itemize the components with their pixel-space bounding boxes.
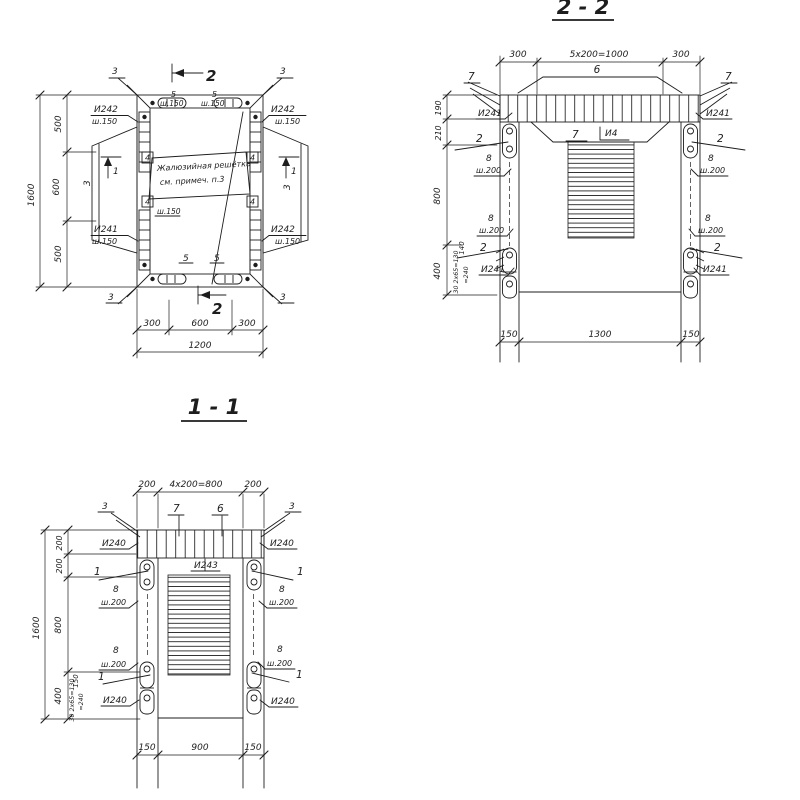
wall-detail bbox=[684, 124, 705, 298]
dim-label: 400 bbox=[433, 262, 443, 279]
item-callout: 4 bbox=[145, 154, 150, 163]
spacing-label: ш.150 bbox=[157, 207, 181, 216]
item-callout: 2 bbox=[476, 133, 483, 145]
item-callout: 7 bbox=[173, 503, 180, 515]
mark-label: И240 bbox=[103, 696, 127, 706]
spacing-label: ш.200 bbox=[269, 598, 294, 607]
item-callout: 3 bbox=[112, 67, 118, 77]
mark-label: И242 bbox=[271, 225, 295, 235]
item-callout: 5 bbox=[212, 90, 217, 99]
dim-label: 200 bbox=[55, 535, 64, 550]
note-text: см. примеч. п.3 bbox=[160, 175, 225, 187]
dim-label: =240 bbox=[78, 693, 85, 710]
dim-label: 30 2x65=130 bbox=[69, 678, 76, 721]
dim-label: 300 bbox=[509, 50, 526, 60]
item-callout: 5 bbox=[183, 254, 189, 264]
section-arrow-icon bbox=[282, 157, 290, 166]
dim-label: 500 bbox=[54, 245, 64, 262]
mark-label: И4 bbox=[605, 129, 618, 139]
item-callout: 7 bbox=[468, 71, 475, 83]
item-callout: 3 bbox=[280, 67, 286, 77]
item-callout: 1 bbox=[297, 566, 304, 578]
item-callout: 4 bbox=[250, 154, 255, 163]
cut-arrow-icon bbox=[200, 291, 210, 299]
corner-detail bbox=[118, 210, 186, 304]
item-callout: 8 bbox=[705, 214, 711, 224]
mark-label: И241 bbox=[703, 265, 727, 275]
mark-label: И242 bbox=[271, 105, 295, 115]
mark-label: И241 bbox=[94, 225, 118, 235]
dim-label: 400 bbox=[54, 687, 64, 704]
mark-label: И240 bbox=[271, 697, 295, 707]
dim-label: 150 bbox=[500, 330, 517, 340]
dim-label: 300 bbox=[672, 50, 689, 60]
dim-label: 200 bbox=[244, 480, 261, 490]
item-callout: 1 bbox=[296, 669, 303, 681]
dim-label: 200 bbox=[55, 558, 64, 573]
cut-label: 1 bbox=[291, 167, 297, 177]
dim-label: 30 2x65=130 bbox=[453, 250, 460, 293]
dim-label: 5x200=1000 bbox=[570, 50, 629, 60]
item-callout: 7 bbox=[725, 71, 732, 83]
dim-label: =240 bbox=[463, 266, 470, 283]
corner-detail bbox=[214, 78, 282, 172]
plan-frame bbox=[137, 95, 263, 287]
cut-arrow-icon bbox=[174, 69, 184, 77]
dim-label: 1200 bbox=[189, 341, 212, 351]
spacing-label: ш.200 bbox=[101, 660, 126, 669]
dim-label: 1300 bbox=[589, 330, 612, 340]
dim-label: 300 bbox=[238, 319, 255, 329]
louver-grille bbox=[168, 575, 230, 675]
item-callout: 1 bbox=[98, 671, 105, 683]
dim-label: 150 bbox=[682, 330, 699, 340]
item-callout: 2 bbox=[480, 242, 487, 254]
dim-label: 600 bbox=[191, 319, 208, 329]
section-arrow-icon bbox=[104, 157, 112, 166]
dim-label: 300 bbox=[143, 319, 160, 329]
dim-label: 4x200=800 bbox=[170, 480, 223, 490]
item-callout: 3 bbox=[102, 502, 108, 512]
sec22-structure bbox=[500, 77, 700, 362]
mark-label: И241 bbox=[481, 265, 505, 275]
item-callout: 8 bbox=[113, 646, 119, 656]
spacing-label: ш.150 bbox=[92, 117, 117, 126]
cut-label: 1 bbox=[113, 167, 119, 177]
item-callout: 6 bbox=[217, 503, 224, 515]
section-2-2-view: 2 - 2 bbox=[433, 0, 745, 362]
corner-wing bbox=[261, 513, 290, 537]
item-callout: 8 bbox=[486, 154, 492, 164]
mark-label: И243 bbox=[194, 561, 218, 571]
dim-label: 900 bbox=[191, 743, 208, 753]
dim-label: 190 bbox=[434, 100, 443, 115]
mark-label: И242 bbox=[94, 105, 118, 115]
item-callout: 5 bbox=[171, 90, 176, 99]
plan-view: 2 2 3 3 3 3 5 5 ш.150 ш.150 И242 ш.150 И… bbox=[27, 64, 308, 358]
louver-grille bbox=[568, 142, 634, 238]
dim-label: 800 bbox=[54, 616, 64, 633]
section-title: 1 - 1 bbox=[188, 395, 241, 419]
item-callout: 3 bbox=[280, 293, 286, 303]
item-callout: 3 bbox=[108, 293, 114, 303]
spacing-label: ш.200 bbox=[698, 226, 723, 235]
spacing-label: ш.150 bbox=[92, 237, 117, 246]
spacing-label: ш.150 bbox=[160, 99, 184, 108]
dim-label: 1600 bbox=[27, 183, 37, 206]
spacing-label: ш.150 bbox=[275, 237, 300, 246]
item-callout: 6 bbox=[594, 64, 601, 76]
item-callout: 8 bbox=[488, 214, 494, 224]
dim-label: 150 bbox=[244, 743, 261, 753]
blueprint-canvas: 2 2 3 3 3 3 5 5 ш.150 ш.150 И242 ш.150 И… bbox=[0, 0, 800, 800]
item-callout: 3 bbox=[283, 184, 293, 190]
item-callout: 7 bbox=[572, 129, 579, 141]
wall-detail bbox=[140, 560, 154, 714]
mark-label: И240 bbox=[270, 539, 294, 549]
spacing-label: ш.150 bbox=[201, 99, 225, 108]
dim-label: 200 bbox=[138, 480, 155, 490]
spacing-label: ш.200 bbox=[101, 598, 126, 607]
plan-dimensions bbox=[36, 91, 267, 358]
spacing-label: ш.200 bbox=[267, 659, 292, 668]
item-callout: 3 bbox=[83, 180, 93, 186]
spacing-label: ш.200 bbox=[479, 226, 504, 235]
item-callout: 1 bbox=[94, 566, 101, 578]
top-beam bbox=[500, 95, 700, 122]
item-callout: 4 bbox=[145, 198, 150, 207]
spacing-label: ш.200 bbox=[700, 166, 725, 175]
dim-label: 210 bbox=[434, 125, 443, 140]
dim-label: 500 bbox=[54, 115, 64, 132]
item-callout: 3 bbox=[289, 502, 295, 512]
dim-label: 600 bbox=[52, 178, 62, 195]
item-callout: 8 bbox=[277, 645, 283, 655]
mark-label: И240 bbox=[102, 539, 126, 549]
item-callout: 8 bbox=[113, 585, 119, 595]
section-title: 2 - 2 bbox=[557, 0, 610, 19]
dim-label: 1600 bbox=[32, 616, 42, 639]
cut-label: 2 bbox=[212, 300, 222, 318]
wall-detail bbox=[247, 560, 261, 714]
item-callout: 8 bbox=[708, 154, 714, 164]
dim-label: 800 bbox=[433, 187, 443, 204]
item-callout: 2 bbox=[717, 133, 724, 145]
item-callout: 4 bbox=[250, 198, 255, 207]
spacing-label: ш.200 bbox=[476, 166, 501, 175]
note-text: Жалюзийная решётка bbox=[156, 159, 252, 173]
item-callout: 2 bbox=[714, 242, 721, 254]
dim-label: 150 bbox=[138, 743, 155, 753]
corner-wing bbox=[111, 513, 140, 537]
section-1-1-view: 1 - 1 bbox=[32, 395, 304, 788]
item-callout: 5 bbox=[214, 254, 220, 264]
spacing-label: ш.150 bbox=[275, 117, 300, 126]
cut-label: 2 bbox=[206, 67, 216, 85]
item-callout: 8 bbox=[279, 585, 285, 595]
mark-label: И241 bbox=[706, 109, 730, 119]
top-beam bbox=[137, 530, 264, 558]
mark-label: И241 bbox=[478, 109, 502, 119]
